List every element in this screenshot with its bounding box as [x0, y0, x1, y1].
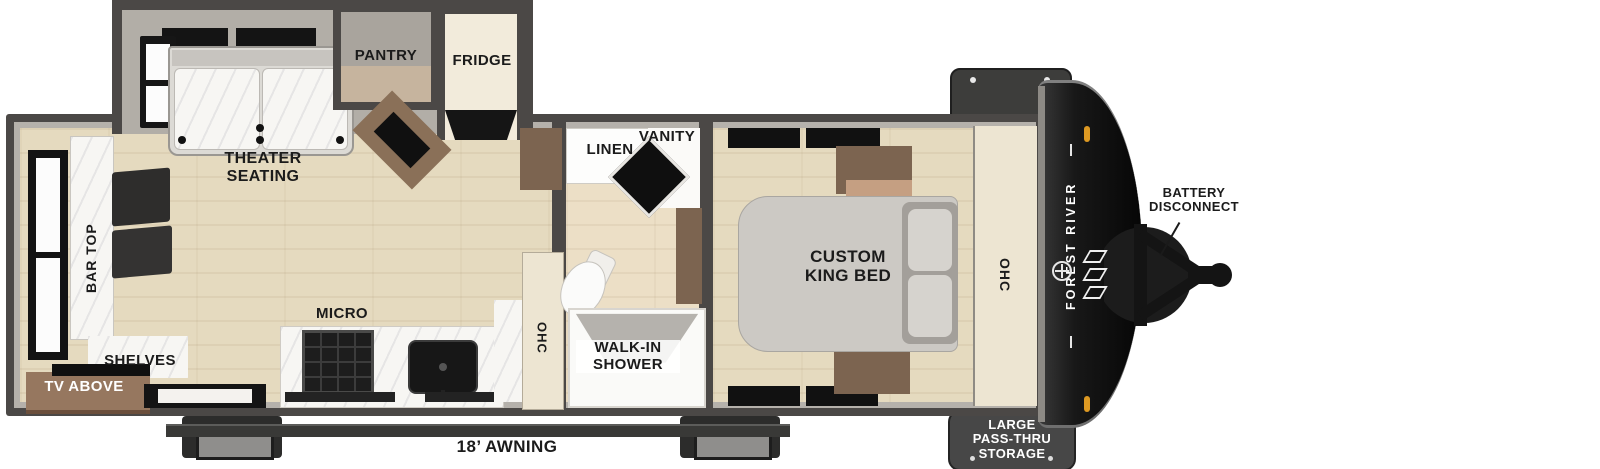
entry-step — [680, 416, 780, 458]
custom-king-bed-label: CUSTOM KING BED — [748, 248, 948, 285]
kitchen-ohc-label: OHC — [532, 312, 552, 364]
shelves-label: SHELVES — [90, 353, 190, 370]
clearance-light — [1084, 126, 1090, 142]
bedroom-window — [728, 128, 800, 148]
entry-step — [182, 416, 282, 458]
bedroom-window — [806, 128, 880, 148]
sink-drain — [439, 363, 447, 371]
forest-river-logo-icon — [1052, 261, 1072, 281]
fridge-front — [445, 110, 517, 140]
hitch-a-frame — [1104, 196, 1234, 356]
bar-stool — [112, 167, 170, 226]
cupholder — [256, 124, 264, 132]
door-panel — [158, 389, 252, 403]
fridge-cabinet — [437, 6, 525, 140]
theater-seating-label: THEATER SEATING — [200, 150, 326, 185]
cupholder — [336, 136, 344, 144]
awning-label: 18’ AWNING — [442, 438, 572, 457]
storage-rivet — [970, 456, 975, 461]
bedroom-ohc-label: OHC — [994, 246, 1016, 304]
stove-cooktop — [302, 330, 374, 394]
window-pane — [36, 258, 60, 352]
window-pane — [36, 158, 60, 252]
brand-rule — [1070, 144, 1072, 156]
floorplan-scene: LARGE PASS-THRU STORAGE — [0, 0, 1600, 469]
seat-cushion — [174, 68, 260, 150]
clearance-light — [1084, 396, 1090, 412]
brand-rule — [1070, 336, 1072, 348]
window-pane — [146, 86, 170, 122]
cupholder — [178, 136, 186, 144]
kitchen-sink — [408, 340, 478, 394]
step-tread — [196, 434, 274, 460]
seat-back — [172, 50, 346, 66]
vanity-label: VANITY — [630, 129, 704, 146]
bedroom-window — [728, 386, 800, 406]
slideout-top-window — [236, 28, 316, 46]
pantry-label: PANTRY — [336, 48, 436, 65]
storage-rivet — [1048, 456, 1053, 461]
brand-name: FOREST RIVER — [1060, 158, 1082, 334]
kitchen-upper-cabinet — [520, 128, 562, 190]
awning-rail — [166, 424, 790, 437]
walk-in-shower-label: WALK-IN SHOWER — [576, 340, 680, 373]
bath-cabinet — [676, 208, 702, 304]
entertainment-cabinet — [352, 98, 444, 186]
micro-label: MICRO — [304, 306, 380, 323]
bar-top-label: BAR TOP — [80, 200, 102, 316]
theater-seating-unit — [168, 46, 354, 156]
cupholder — [256, 136, 264, 144]
bar-stool — [112, 225, 172, 278]
step-tread — [694, 434, 772, 460]
counter-base-mat — [285, 392, 395, 402]
cap-wall-edge — [1038, 86, 1045, 422]
battery-disconnect-label: BATTERY DISCONNECT — [1128, 186, 1260, 215]
bedroom-wardrobe — [834, 348, 910, 394]
tv-above-label: TV ABOVE — [28, 379, 140, 396]
fridge-label: FRIDGE — [442, 53, 522, 70]
kitchen-counter-end — [494, 300, 524, 402]
step-rivet — [970, 77, 976, 83]
window-pane — [146, 44, 170, 80]
entry-door — [144, 384, 266, 408]
living-side-window — [28, 150, 68, 360]
